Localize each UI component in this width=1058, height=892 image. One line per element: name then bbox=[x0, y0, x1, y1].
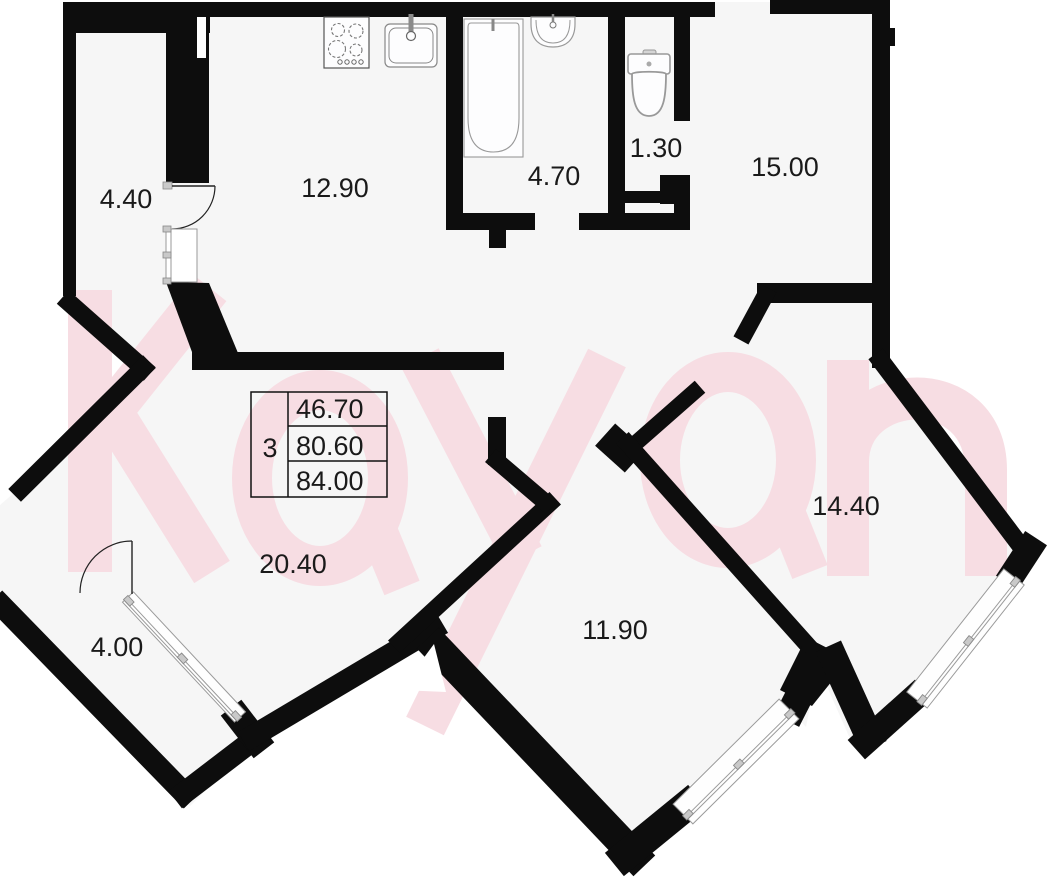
svg-text:84.00: 84.00 bbox=[296, 466, 364, 496]
svg-text:20.40: 20.40 bbox=[259, 549, 327, 579]
svg-text:46.70: 46.70 bbox=[296, 394, 364, 424]
svg-text:4.40: 4.40 bbox=[100, 184, 153, 214]
svg-text:1.30: 1.30 bbox=[630, 133, 683, 163]
svg-text:14.40: 14.40 bbox=[812, 491, 880, 521]
svg-text:11.90: 11.90 bbox=[582, 615, 648, 645]
svg-text:3: 3 bbox=[262, 433, 277, 463]
svg-text:4.00: 4.00 bbox=[91, 632, 144, 662]
svg-text:12.90: 12.90 bbox=[301, 173, 369, 203]
svg-text:80.60: 80.60 bbox=[296, 431, 364, 461]
svg-text:4.70: 4.70 bbox=[528, 161, 581, 191]
svg-text:15.00: 15.00 bbox=[751, 152, 819, 182]
